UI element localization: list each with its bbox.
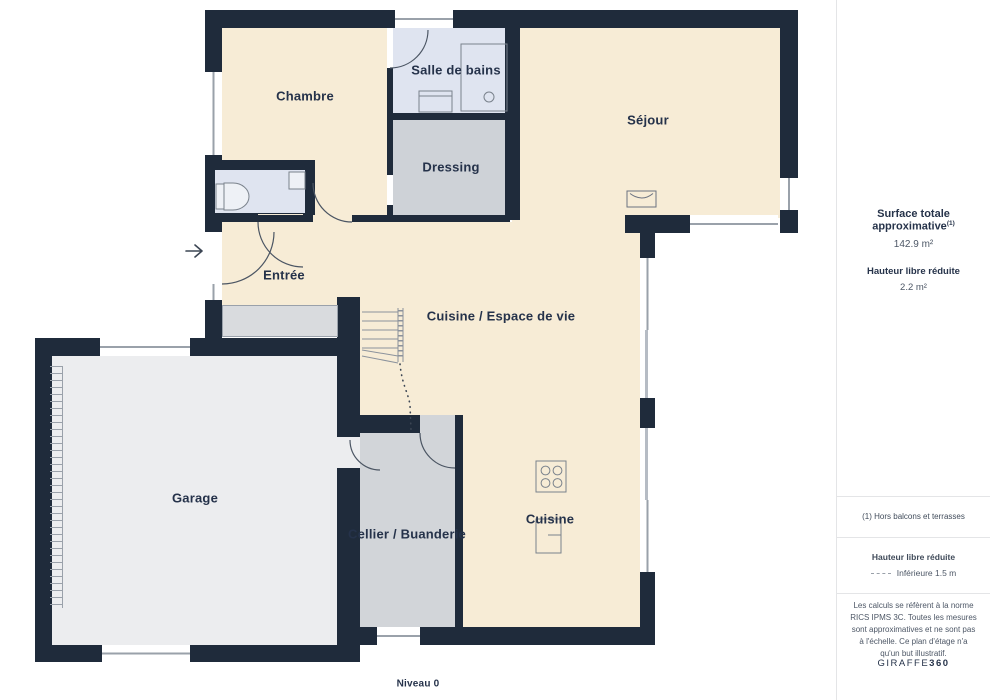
room-label-entree: Entrée (263, 268, 305, 283)
window (205, 72, 222, 155)
entry-arrow-icon (186, 245, 202, 257)
surface-stats: Surface totale approximative(1) 142.9 m²… (837, 208, 990, 293)
wall-segment (205, 300, 222, 340)
garage-door (50, 366, 63, 608)
room-floor-wc (215, 170, 305, 213)
wall-segment (390, 113, 510, 120)
window (640, 258, 655, 330)
room-label-garage: Garage (172, 491, 218, 506)
room-label-cuisine: Cuisine (526, 512, 574, 527)
door-opening (420, 415, 455, 433)
info-sidebar: Surface totale approximative(1) 142.9 m²… (836, 0, 990, 700)
room-label-cuisine-espace: Cuisine / Espace de vie (427, 309, 575, 324)
window (640, 500, 655, 572)
window (100, 338, 190, 356)
wall-segment (780, 10, 798, 178)
window (395, 10, 453, 28)
brand-suffix: 360 (929, 658, 949, 669)
room-floor-entree (222, 222, 640, 305)
reduced-height-title: Hauteur libre réduite (837, 266, 990, 277)
door-opening (337, 437, 360, 468)
surface-total-title-text: Surface totale approximative (872, 208, 950, 233)
room-label-sejour: Séjour (627, 113, 669, 128)
wall-segment (505, 10, 520, 220)
window (780, 178, 798, 210)
legend-row: Inférieure 1.5 m (871, 568, 957, 578)
floor-plan-page: { "plan": { "level_label": "Niveau 0", "… (0, 0, 990, 700)
window (690, 215, 778, 233)
wall-segment (205, 10, 395, 28)
window (377, 627, 420, 645)
legend-title: Hauteur libre réduite (872, 552, 955, 562)
level-label: Niveau 0 (397, 679, 440, 690)
window (205, 284, 222, 300)
brand-logo: GIRAFFE360 (837, 658, 990, 669)
footnote: (1) Hors balcons et terrasses (837, 496, 990, 537)
legend-item-label: Inférieure 1.5 m (897, 568, 957, 578)
floor-plan: Chambre Salle de bains Dressing Séjour E… (0, 0, 836, 700)
wall-segment (387, 215, 510, 222)
room-label-cellier: Cellier / Buanderie (348, 527, 466, 542)
glass-wall (645, 428, 648, 500)
closet (222, 305, 338, 337)
wall-segment (205, 10, 222, 72)
wall-segment (35, 338, 360, 356)
divider (837, 593, 990, 594)
window (102, 645, 190, 662)
wall-segment (337, 297, 360, 437)
wall-segment (222, 215, 390, 222)
room-label-dressing: Dressing (422, 160, 479, 175)
wall-segment (625, 215, 690, 233)
surface-total-value: 142.9 m² (837, 239, 990, 250)
surface-total-title: Surface totale approximative(1) (837, 208, 990, 233)
glass-wall (645, 330, 648, 398)
disclaimer-text: Les calculs se réfèrent à la norme RICS … (849, 600, 978, 660)
room-label-chambre: Chambre (276, 89, 334, 104)
wall-segment (640, 398, 655, 428)
wall-segment (35, 645, 360, 662)
room-label-salle-de-bains: Salle de bains (411, 63, 501, 78)
wall-segment (455, 415, 463, 627)
wall-segment (337, 468, 360, 645)
surface-footnote-marker: (1) (947, 220, 955, 227)
wall-segment (640, 233, 655, 258)
wall-segment (387, 68, 393, 175)
reduced-height-value: 2.2 m² (837, 282, 990, 293)
door-opening (313, 215, 352, 222)
dashed-line-swatch (871, 573, 891, 574)
brand-name: GIRAFFE (877, 658, 929, 669)
legend: Hauteur libre réduite Inférieure 1.5 m (837, 537, 990, 593)
wall-segment (780, 210, 798, 233)
